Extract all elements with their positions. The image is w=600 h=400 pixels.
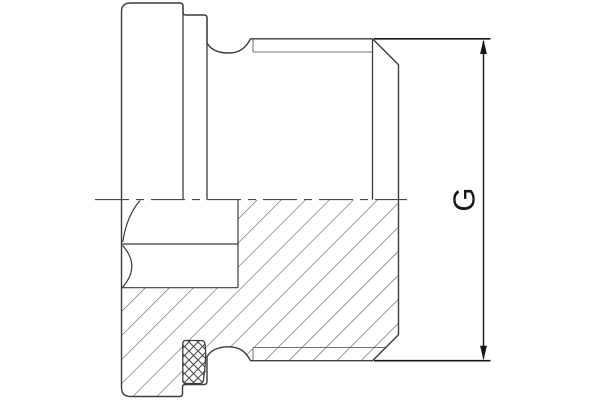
plug-section-drawing: G xyxy=(0,0,600,400)
dimension-label-g: G xyxy=(447,187,482,211)
ed-seal xyxy=(183,341,206,384)
ed-seal-crosshatch xyxy=(183,341,206,384)
technical-drawing-screenshot: G xyxy=(0,0,600,400)
